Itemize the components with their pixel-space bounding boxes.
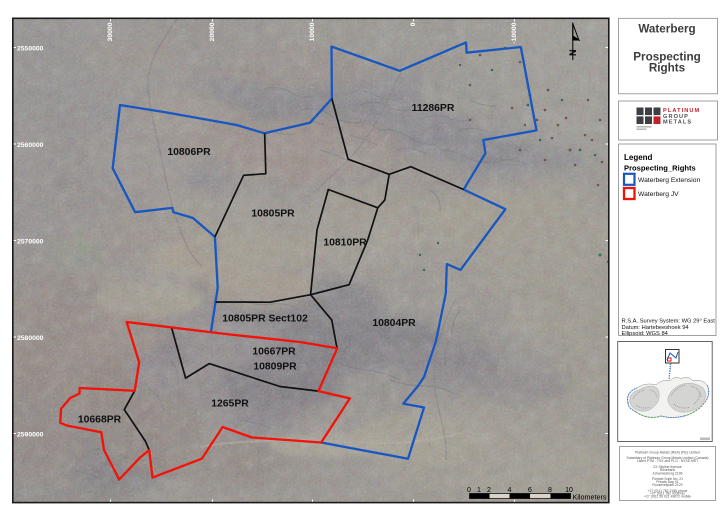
svg-text:+27 (0)11 56 021 49672 mobile: +27 (0)11 56 021 49672 mobile — [644, 495, 691, 499]
svg-text:Ellipsoid: WGS 84: Ellipsoid: WGS 84 — [622, 331, 669, 337]
svg-text:Johannesburg 2196: Johannesburg 2196 — [653, 471, 683, 475]
svg-text:11286PR: 11286PR — [412, 103, 455, 114]
svg-text:6: 6 — [528, 487, 532, 494]
svg-text:10667PR: 10667PR — [252, 347, 296, 358]
svg-text:R.S.A. Survey System: WG 29°: R.S.A. Survey System: WG 29° East — [622, 319, 716, 325]
svg-text:2: 2 — [487, 487, 491, 494]
svg-text:Waterberg Extension: Waterberg Extension — [638, 177, 700, 184]
svg-text:-10000: -10000 — [511, 22, 518, 43]
svg-text:4: 4 — [508, 487, 512, 494]
svg-text:Prospecting_Rights: Prospecting_Rights — [624, 163, 696, 172]
svg-text:METALS: METALS — [663, 120, 692, 126]
svg-text:10804PR: 10804PR — [372, 318, 416, 329]
svg-text:10805PR Sect102: 10805PR Sect102 — [222, 314, 308, 325]
svg-text:2560000: 2560000 — [17, 142, 44, 149]
svg-text:0: 0 — [410, 22, 417, 26]
svg-text:10810PR: 10810PR — [323, 238, 367, 249]
svg-text:10806PR: 10806PR — [167, 147, 211, 158]
svg-text:Legend: Legend — [624, 153, 653, 162]
svg-text:30000: 30000 — [107, 22, 114, 41]
svg-text:0: 0 — [467, 487, 471, 494]
svg-text:10000: 10000 — [309, 22, 316, 41]
svg-text:1265PR: 1265PR — [211, 399, 249, 410]
svg-text:2580000: 2580000 — [17, 335, 44, 342]
svg-text:Platinum Group Metals (RSA) (P: Platinum Group Metals (RSA) (Pty) Limite… — [635, 450, 700, 454]
svg-text:2550000: 2550000 — [17, 45, 44, 52]
svg-text:1: 1 — [477, 487, 481, 494]
svg-text:2590000: 2590000 — [17, 431, 44, 438]
svg-text:8: 8 — [548, 487, 552, 494]
svg-text:10668PR: 10668PR — [78, 414, 122, 425]
svg-text:10805PR: 10805PR — [251, 209, 295, 220]
svg-text:N: N — [567, 50, 577, 57]
svg-text:20000: 20000 — [209, 22, 216, 41]
svg-text:Waterberg JV: Waterberg JV — [638, 191, 679, 198]
svg-text:Kilometers: Kilometers — [573, 493, 607, 502]
svg-text:Listed PTM - TSX and PLG - NYS: Listed PTM - TSX and PLG - NYSE MKT — [637, 459, 698, 463]
svg-text:Rights: Rights — [649, 62, 686, 75]
svg-text:2570000: 2570000 — [17, 238, 44, 245]
svg-text:Rooseveltpark 2129: Rooseveltpark 2129 — [652, 483, 682, 487]
svg-text:Waterberg: Waterberg — [638, 23, 695, 36]
svg-text:10809PR: 10809PR — [253, 362, 297, 373]
svg-text:Datum: Hartebeeshoek 94: Datum: Hartebeeshoek 94 — [622, 325, 690, 331]
